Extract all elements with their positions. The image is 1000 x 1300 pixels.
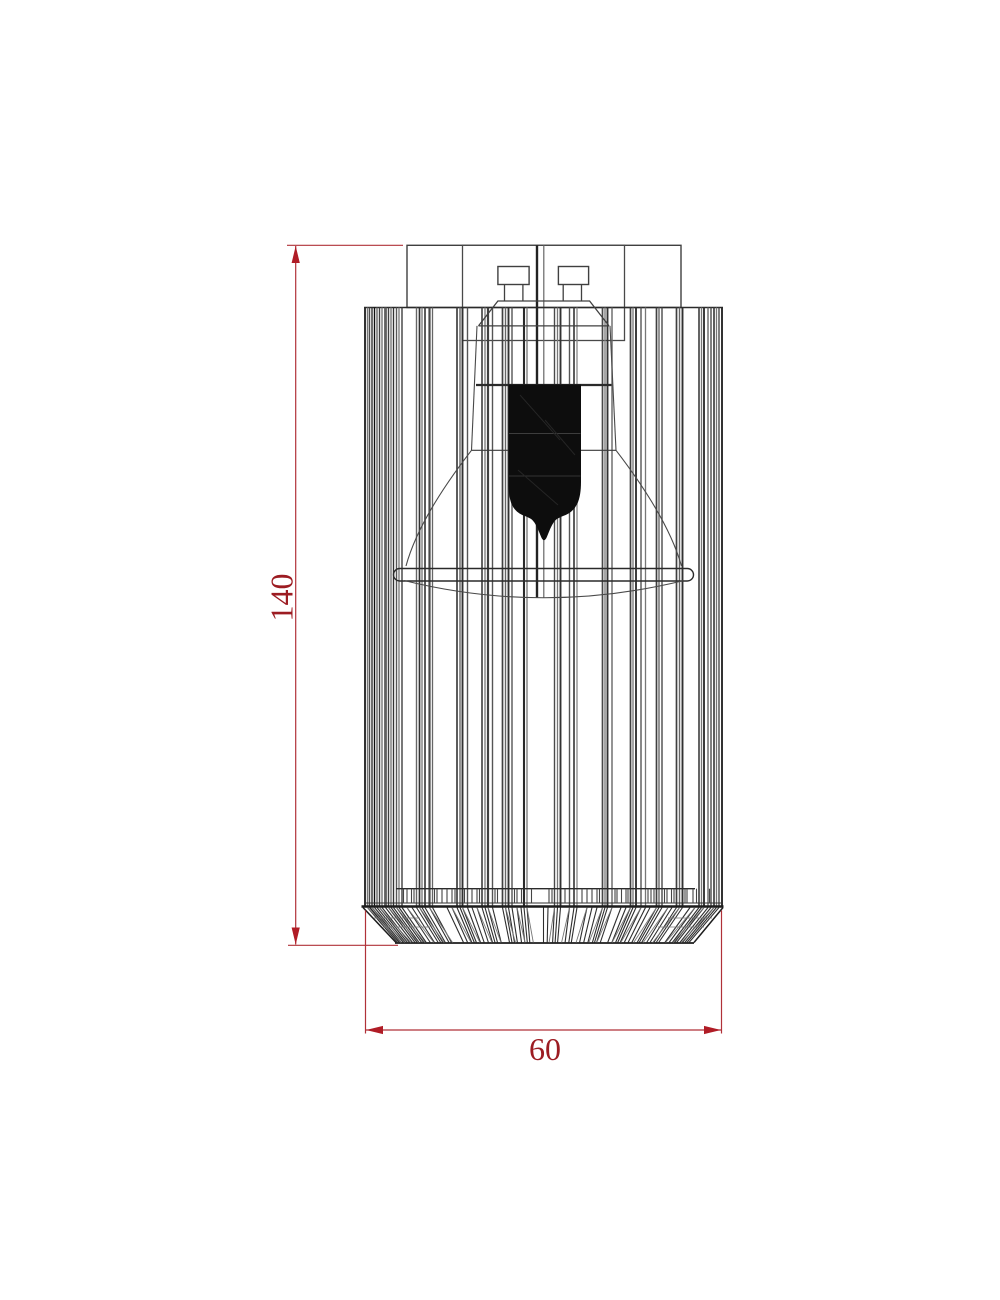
svg-text:140: 140 [264,574,300,622]
svg-text:60: 60 [529,1031,561,1067]
